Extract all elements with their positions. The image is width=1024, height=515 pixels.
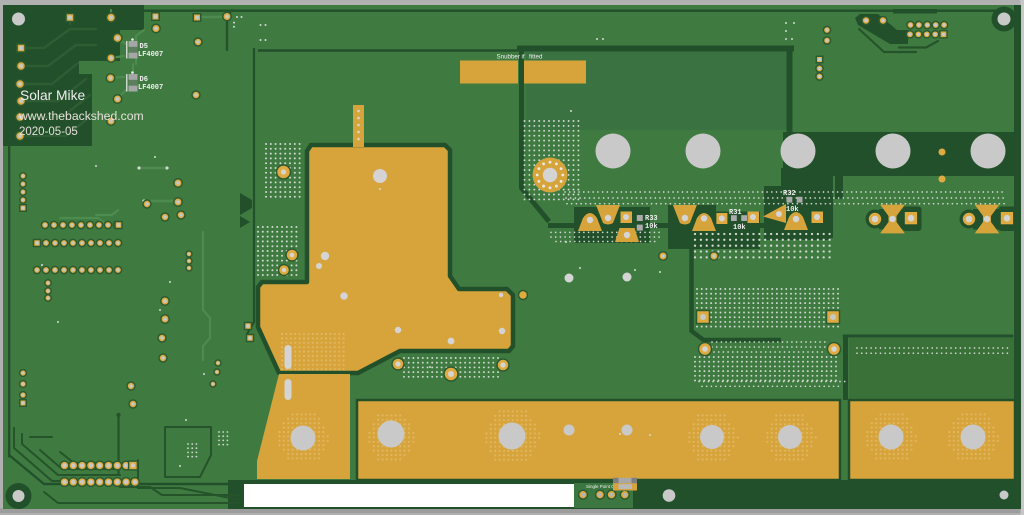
svg-text:10k: 10k [645,223,658,231]
svg-text:Solar Mike: Solar Mike [20,88,85,103]
svg-text:www.thebackshed.com: www.thebackshed.com [18,109,144,123]
svg-text:LF4007: LF4007 [138,51,163,59]
svg-text:if: if [522,54,525,61]
svg-text:Single Point 0v: Single Point 0v [586,484,617,489]
svg-text:Snubber: Snubber [497,54,520,61]
svg-text:D6: D6 [140,76,148,84]
svg-text:R32: R32 [783,190,796,198]
svg-text:D5: D5 [140,43,148,51]
svg-text:R33: R33 [645,215,658,223]
svg-text:2020-05-05: 2020-05-05 [19,126,78,138]
svg-text:R31: R31 [729,209,742,217]
svg-text:fitted: fitted [529,54,543,61]
svg-text:LF4007: LF4007 [138,84,163,92]
svg-text:10k: 10k [733,224,746,232]
svg-text:10k: 10k [786,206,799,214]
